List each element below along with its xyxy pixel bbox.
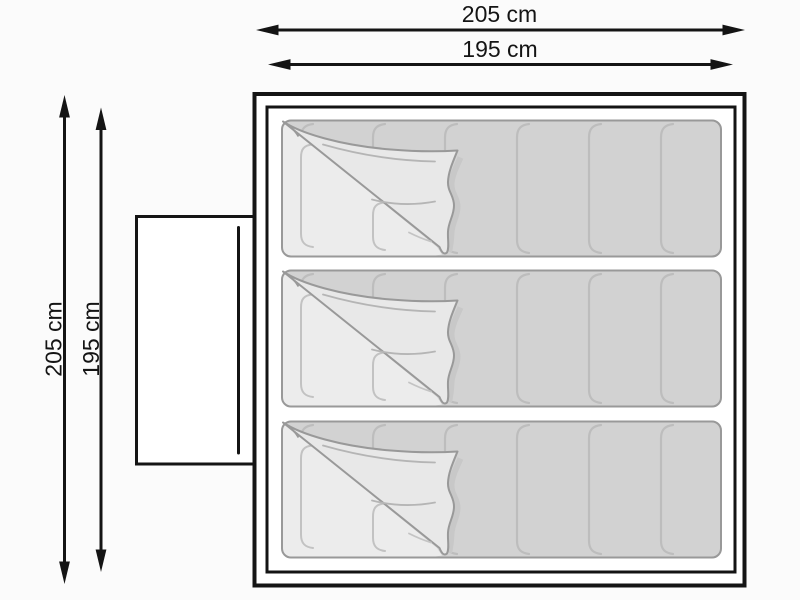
svg-text:205 cm: 205 cm xyxy=(462,1,537,27)
svg-text:195 cm: 195 cm xyxy=(78,301,104,376)
svg-text:195 cm: 195 cm xyxy=(462,36,537,62)
svg-text:205 cm: 205 cm xyxy=(41,301,67,376)
